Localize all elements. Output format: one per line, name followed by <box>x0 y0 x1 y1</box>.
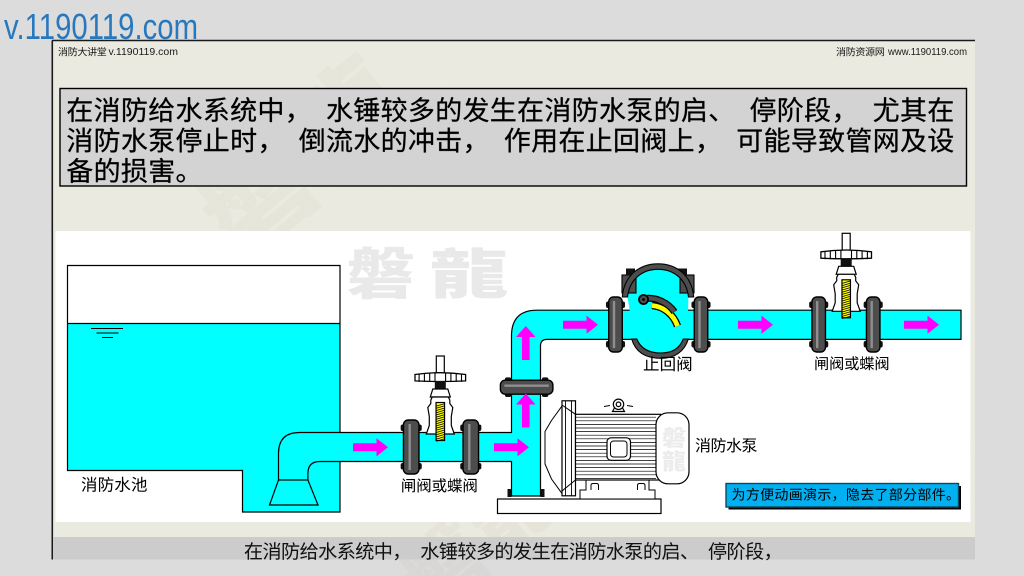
svg-text:www.1190119.com: www.1190119.com <box>887 47 967 58</box>
svg-text:v.1190119.com: v.1190119.com <box>109 46 179 58</box>
